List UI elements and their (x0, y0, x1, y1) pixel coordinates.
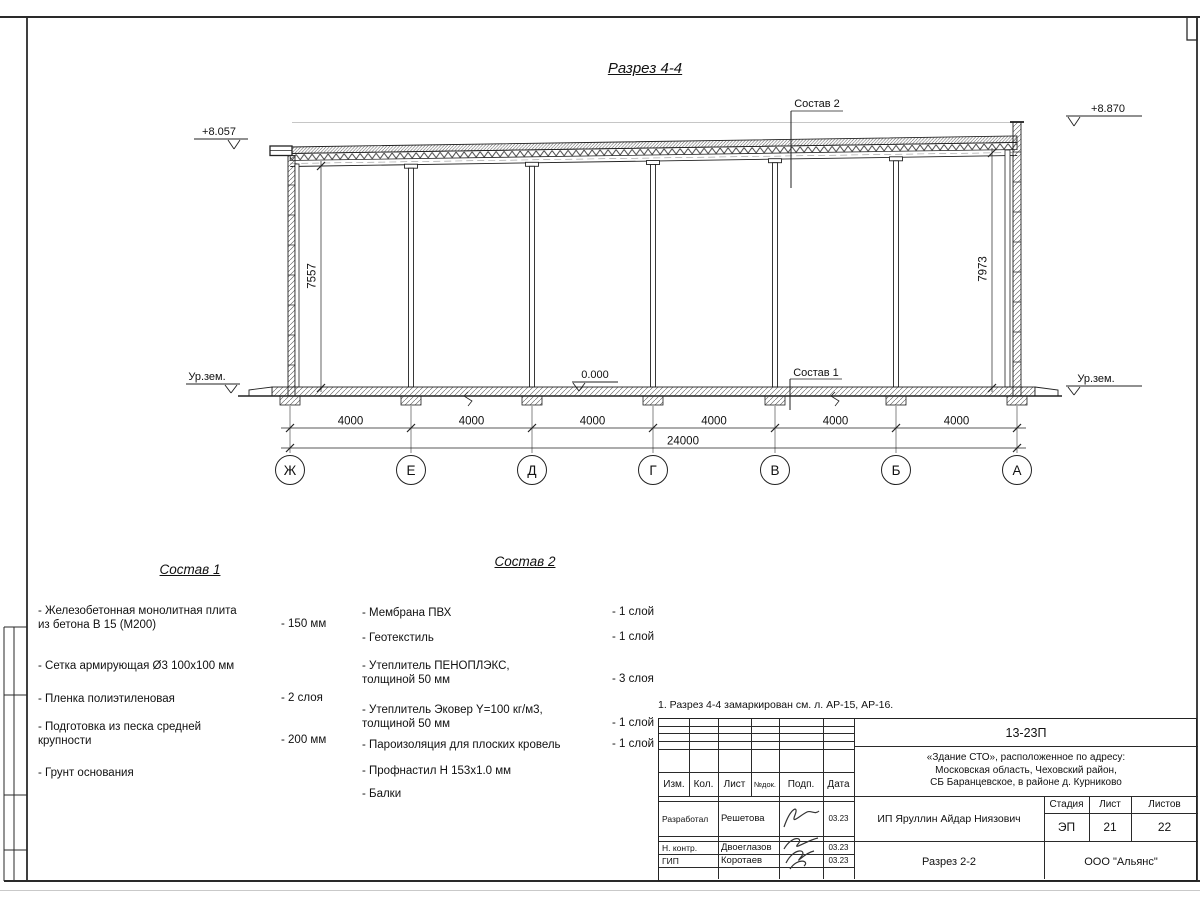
divider (659, 867, 854, 868)
bay-dim-1: 4000 (459, 416, 485, 428)
divider (659, 741, 854, 742)
date-gip: 03.23 (823, 854, 854, 867)
stage-label: Стадия (1044, 796, 1089, 813)
wall-axis-zh (288, 156, 299, 397)
axis-label-v: В (770, 463, 779, 478)
elev-left-label: +8.057 (202, 126, 236, 138)
drawing-sheet: Ж Е Д Г В Б А 4000 4000 4000 4000 4000 4… (0, 0, 1200, 900)
divider (659, 749, 854, 750)
col-header-podp: Подп. (779, 772, 823, 796)
floor-slab (272, 387, 1035, 396)
column-axis-v (769, 159, 782, 387)
list-item: - Пленка полиэтиленовая - 2 слоя (38, 692, 276, 706)
role-gip: ГИП (659, 854, 718, 867)
list-item: - Сетка армирующая Ø3 100х100 мм (38, 659, 276, 673)
sheet-value: 21 (1089, 813, 1131, 841)
column-axis-g (647, 161, 660, 388)
list-item: - Железобетонная монолитная плита из бет… (38, 604, 276, 632)
list-item: - Утеплитель Эковер Y=100 кг/м3, толщино… (362, 703, 600, 731)
sheet-title: Разрез 2-2 (854, 841, 1044, 882)
elev-right-label: +8.870 (1091, 103, 1125, 115)
role-razrabotal: Разработал (659, 801, 718, 836)
note-text: 1. Разрез 4-4 замаркирован см. л. АР-15,… (658, 699, 893, 711)
elev-zero-label: 0.000 (581, 369, 609, 381)
col-header-data: Дата (823, 772, 854, 796)
date-razrabotal: 03.23 (823, 801, 854, 836)
name-nkontr: Двоеглазов (718, 841, 779, 854)
axis-label-b: Б (892, 463, 901, 478)
material-name: - Утеплитель Эковер Y=100 кг/м3, толщино… (362, 703, 600, 731)
bay-dim-3: 4000 (701, 416, 727, 428)
list-item: - Геотекстиль - 1 слой (362, 631, 600, 645)
list-item: - Балки (362, 787, 600, 801)
material-value: - 1 слой (612, 605, 654, 619)
column-axis-b (890, 157, 903, 387)
col-header-izm: Изм. (659, 772, 689, 796)
left-margin-stamps (4, 627, 27, 881)
axis-label-d: Д (527, 463, 536, 478)
axis-label-g: Г (649, 463, 657, 478)
bay-dim-4: 4000 (823, 416, 849, 428)
material-name: - Пароизоляция для плоских кровель (362, 738, 600, 752)
sheets-value: 22 (1131, 813, 1198, 841)
material-value: - 1 слой (612, 737, 654, 751)
col-header-ndoc: №док. (751, 772, 779, 796)
sheet-label: Лист (1089, 796, 1131, 813)
company-name: ООО "Альянс" (1044, 841, 1198, 882)
material-name: - Геотекстиль (362, 631, 600, 645)
cornice-left (270, 146, 292, 156)
list-item: - Утеплитель ПЕНОПЛЭКС, толщиной 50 мм -… (362, 659, 600, 687)
name-razrabotal: Решетова (718, 801, 779, 836)
interior-columns (405, 157, 903, 387)
axis-label-e: Е (406, 463, 415, 478)
divider (659, 836, 854, 837)
axis-label-a: А (1012, 463, 1021, 478)
extension-lines (290, 406, 1017, 453)
building-section (238, 122, 1062, 406)
material-name: - Профнастил Н 153х1.0 мм (362, 764, 600, 778)
divider (659, 726, 854, 727)
stage-value: ЭП (1044, 813, 1089, 841)
doc-number-corner-box (1187, 17, 1197, 40)
material-name: - Балки (362, 787, 600, 801)
list-item: - Профнастил Н 153х1.0 мм (362, 764, 600, 778)
list-item: - Мембрана ПВХ - 1 слой (362, 606, 600, 620)
blind-area-left (249, 387, 272, 396)
divider (659, 733, 854, 734)
doc-number: 13-23П (854, 719, 1198, 746)
material-value: - 150 мм (281, 617, 326, 631)
role-nkontr: Н. контр. (659, 841, 718, 854)
date-nkontr: 03.23 (823, 841, 854, 854)
bay-dim-0: 4000 (338, 416, 364, 428)
material-name: - Утеплитель ПЕНОПЛЭКС, толщиной 50 мм (362, 659, 600, 687)
material-name: - Железобетонная монолитная плита из бет… (38, 604, 276, 632)
sheets-label: Листов (1131, 796, 1198, 813)
ground-right-mark (1066, 386, 1142, 395)
project-name: «Здание СТО», расположенное по адресу: М… (854, 746, 1198, 796)
bay-dim-2: 4000 (580, 416, 606, 428)
vdim-right: 7973 (978, 256, 990, 282)
elev-right-mark (1066, 116, 1142, 126)
total-dim: 24000 (667, 436, 699, 448)
titleblock: Изм. Кол. Лист №док. Подп. Дата Разработ… (658, 718, 1197, 881)
col-header-kol: Кол. (689, 772, 718, 796)
callout-sostav1: Состав 1 (793, 367, 839, 379)
ground-left-mark (186, 384, 240, 393)
axis-label-zh: Ж (284, 463, 297, 478)
vdim-left: 7557 (307, 263, 319, 289)
material-name: - Грунт основания (38, 766, 276, 780)
signature-razrabotal (780, 803, 822, 835)
bay-dim-5: 4000 (944, 416, 970, 428)
material-value: - 3 слоя (612, 672, 654, 686)
list-item: - Подготовка из песка средней крупности … (38, 720, 276, 748)
foundation-pads (280, 396, 1027, 405)
wall-axis-a (1005, 122, 1024, 396)
list-item: - Пароизоляция для плоских кровель - 1 с… (362, 738, 600, 752)
elev-left-mark (194, 139, 248, 149)
column-axis-d (526, 162, 539, 387)
column-axis-e (405, 164, 418, 387)
material-value: - 200 мм (281, 733, 326, 747)
col-header-list: Лист (718, 772, 751, 796)
material-value: - 2 слоя (281, 691, 323, 705)
ground-label-right: Ур.зем. (1077, 373, 1114, 385)
sostav1-heading: Состав 1 (120, 562, 260, 577)
name-gip: Коротаев (718, 854, 779, 867)
material-name: - Мембрана ПВХ (362, 606, 600, 620)
material-name: - Пленка полиэтиленовая (38, 692, 276, 706)
list-item: - Грунт основания (38, 766, 276, 780)
section-title: Разрез 4-4 (563, 60, 727, 77)
material-name: - Сетка армирующая Ø3 100х100 мм (38, 659, 276, 673)
material-name: - Подготовка из песка средней крупности (38, 720, 276, 748)
blind-area-right (1035, 387, 1058, 396)
sostav2-heading: Состав 2 (455, 554, 595, 569)
divider (659, 796, 854, 797)
ground-label-left: Ур.зем. (188, 371, 225, 383)
signature-nkontr-gip (780, 833, 824, 873)
material-value: - 1 слой (612, 716, 654, 730)
client-name: ИП Яруллин Айдар Ниязович (854, 796, 1044, 841)
callout-sostav2: Состав 2 (794, 98, 840, 110)
material-value: - 1 слой (612, 630, 654, 644)
